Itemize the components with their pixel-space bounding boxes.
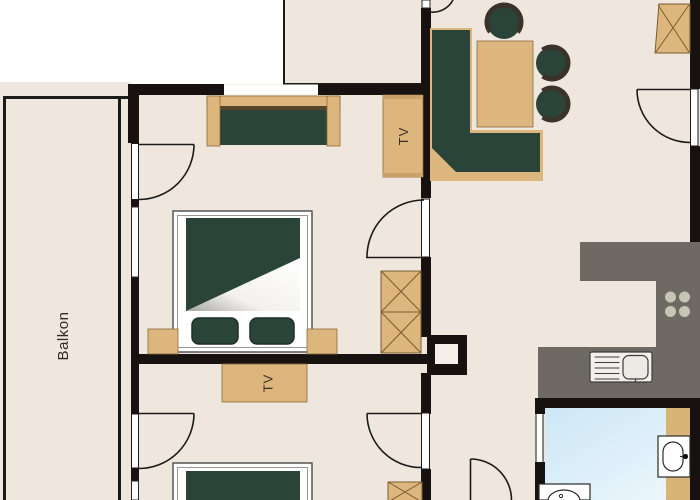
wall-left-4 <box>131 468 139 481</box>
wall-bedroom1-bottom <box>131 354 427 364</box>
window-bedroom2-left <box>132 481 139 500</box>
bathroom <box>539 408 690 500</box>
wall-right-3 <box>690 398 700 500</box>
wall-right-2 <box>690 146 700 250</box>
tv-board-edge <box>383 95 423 99</box>
wall-bath-top <box>535 398 700 408</box>
washbasin <box>658 436 690 477</box>
nightstand-right <box>307 329 337 354</box>
pillow <box>250 318 294 344</box>
burner-icon <box>665 306 676 317</box>
window-top-room <box>422 0 430 8</box>
column-shaft-core <box>435 344 458 364</box>
wall-top-right <box>318 85 431 95</box>
sink-basin <box>623 356 648 380</box>
wardrobe-bedroom2 <box>388 482 422 500</box>
tv-label-bedroom1: TV <box>396 127 411 146</box>
sofa-armrest-left <box>207 96 220 146</box>
tv-board-bedroom1: TV <box>383 95 423 177</box>
sofa-armrest-right <box>327 96 340 146</box>
kitchen-counter-top <box>580 242 700 281</box>
kitchen-sink <box>590 352 652 382</box>
bed-bedroom2 <box>173 463 312 500</box>
floor-balcony <box>0 82 131 500</box>
washbasin-faucet <box>683 454 688 459</box>
bed-blanket <box>186 471 300 500</box>
floorplan-page: Balkon <box>0 0 700 500</box>
wall-center-2 <box>421 257 431 337</box>
toilet <box>539 484 590 500</box>
kitchen-counter-right <box>656 281 700 347</box>
sofa-seat <box>219 106 328 145</box>
wall-top-left <box>128 84 224 95</box>
wardrobe-bedroom1 <box>381 271 421 353</box>
burner-icon <box>679 306 690 317</box>
burner-icon <box>665 292 676 303</box>
tv-board-bedroom2: TV <box>222 364 307 402</box>
floor-top-room <box>283 0 422 84</box>
floorplan-svg: Balkon <box>0 0 700 500</box>
window-top <box>224 85 318 95</box>
wall-center-3 <box>421 373 431 414</box>
window-bedroom1-left <box>132 207 139 277</box>
pillow <box>192 318 238 344</box>
balcony-label: Balkon <box>55 312 72 361</box>
burner-icon <box>679 292 690 303</box>
tv-board-edge <box>383 173 423 177</box>
nightstand-left <box>148 329 178 354</box>
tv-label-bedroom2: TV <box>260 374 275 393</box>
wall-left-1 <box>128 84 139 143</box>
dining-table <box>477 41 533 127</box>
wall-right-1 <box>690 0 700 89</box>
wardrobe-living <box>655 4 690 53</box>
bed-bedroom1 <box>173 211 312 352</box>
sofa-seat-shadow <box>219 106 328 110</box>
wall-left-3 <box>131 277 139 414</box>
sofa <box>207 96 340 146</box>
